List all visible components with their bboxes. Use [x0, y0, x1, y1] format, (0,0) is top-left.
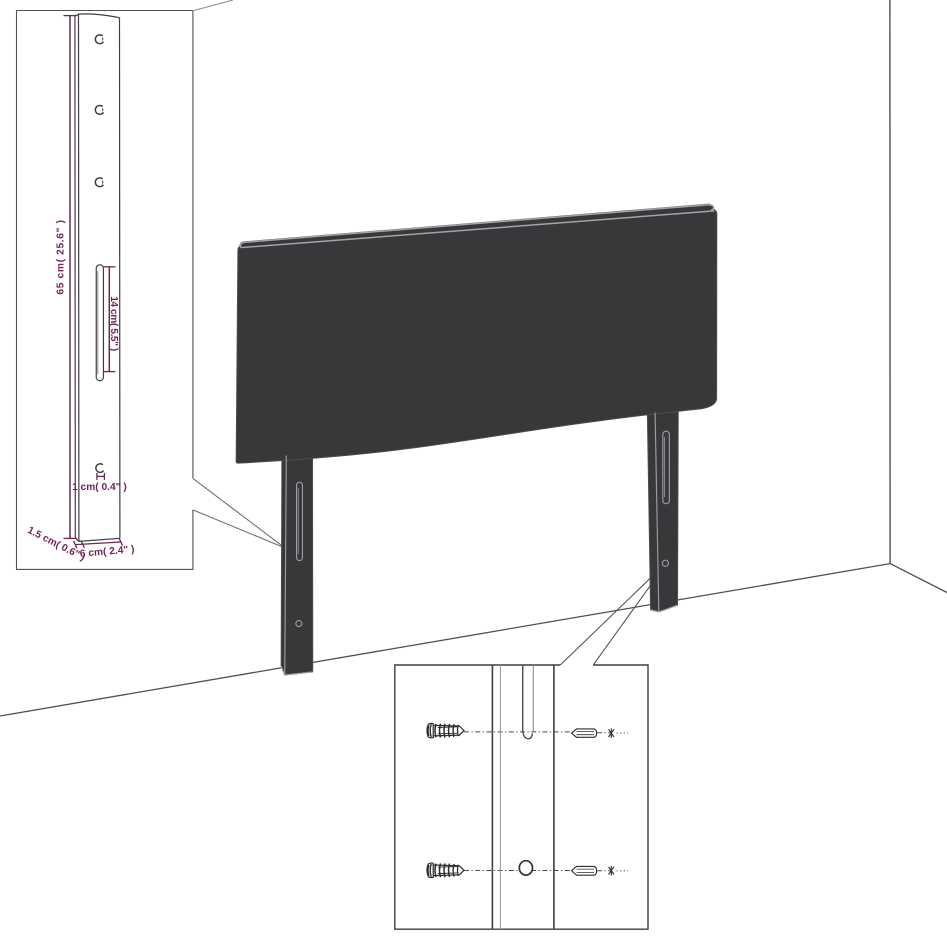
svg-text:1 cm( 0.4" ): 1 cm( 0.4" ) — [72, 482, 127, 493]
svg-text:14 cm( 5.5" ): 14 cm( 5.5" ) — [108, 296, 119, 351]
svg-text:65 cm( 25.6" ): 65 cm( 25.6" ) — [55, 219, 66, 294]
